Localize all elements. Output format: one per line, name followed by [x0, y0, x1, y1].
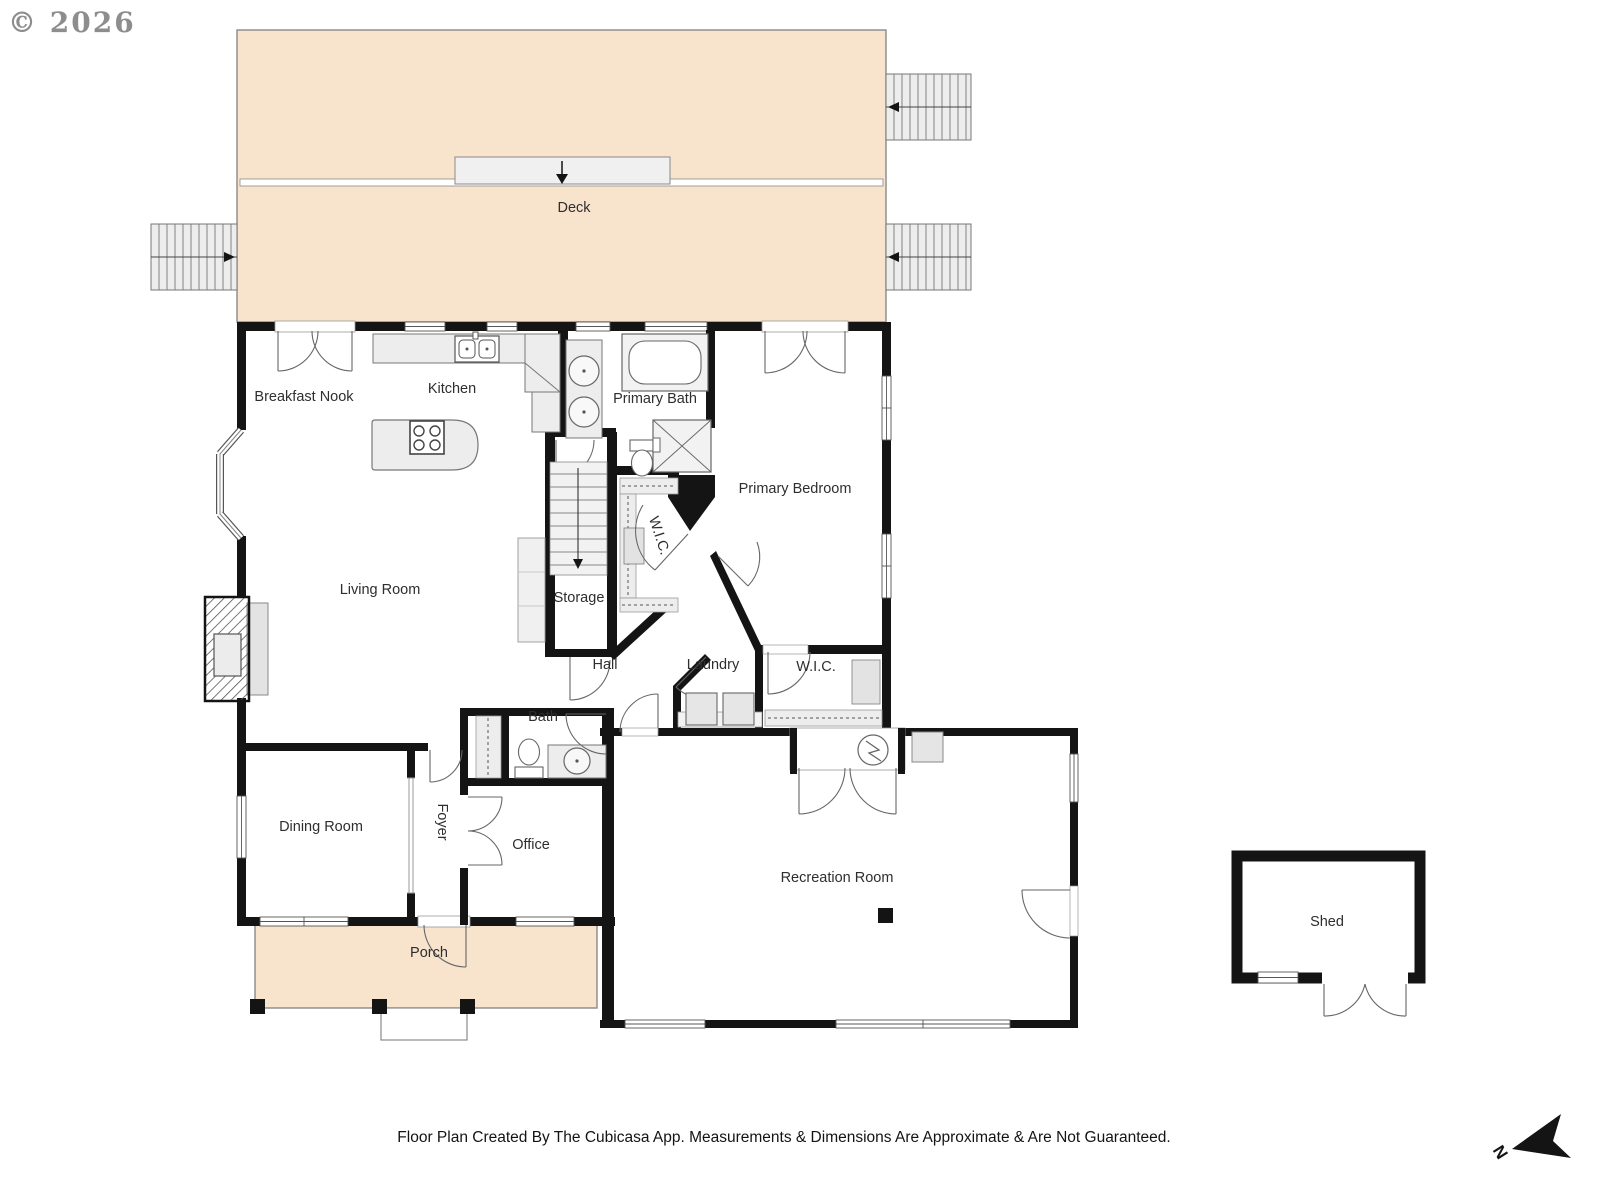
- porch-step: [381, 1008, 467, 1040]
- deck-stairs-right-lower: [886, 224, 971, 290]
- room-label-dining-room: Dining Room: [279, 819, 363, 835]
- door-arc: [799, 768, 896, 814]
- room-label-porch: Porch: [410, 945, 448, 961]
- door-arc: [1324, 984, 1406, 1016]
- stove-icon: [410, 421, 444, 454]
- kitchen-island: [372, 420, 478, 470]
- door-arc: [1022, 890, 1070, 938]
- laundry-fixtures: [678, 693, 762, 727]
- hall-rec-door-opening: [622, 728, 658, 736]
- stairs-icon: [550, 462, 607, 575]
- compass-letter: N: [1489, 1142, 1512, 1162]
- room-label-primary-bedroom: Primary Bedroom: [739, 481, 852, 497]
- room-label-hall: Hall: [593, 657, 618, 673]
- room-label-wic-2: W.I.C.: [796, 659, 835, 675]
- cased-opening: [407, 778, 415, 893]
- utility-box: [912, 732, 943, 762]
- door-arc: [468, 797, 502, 831]
- post: [250, 999, 265, 1014]
- post: [372, 999, 387, 1014]
- vanity-sinks: [566, 340, 602, 438]
- copyright-text: © 2026: [8, 6, 136, 39]
- shed-door-opening: [1322, 971, 1408, 984]
- room-label-breakfast-nook: Breakfast Nook: [254, 389, 354, 405]
- french-door-opening: [275, 321, 355, 332]
- sink-icon: [455, 332, 499, 362]
- fireplace-icon: [205, 597, 268, 701]
- post: [460, 999, 475, 1014]
- door-arc: [278, 331, 352, 371]
- room-label-deck: Deck: [557, 200, 591, 216]
- room-label-bath: Bath: [528, 709, 558, 725]
- shower-icon: [653, 420, 711, 472]
- shed-structure: [1237, 856, 1420, 1016]
- door-arc: [748, 542, 760, 586]
- deck-stairs-left: [151, 224, 237, 290]
- deck-area: [151, 30, 971, 322]
- room-label-living-room: Living Room: [340, 582, 421, 598]
- room-label-office: Office: [512, 837, 550, 853]
- porch-area: [250, 925, 597, 1040]
- floor-plan-page: Deck Breakfast Nook Kitchen Primary Bath…: [0, 0, 1600, 1200]
- sink-icon: [548, 745, 606, 778]
- room-label-recreation-room: Recreation Room: [781, 870, 894, 886]
- room-label-primary-bath: Primary Bath: [613, 391, 697, 407]
- toilet-icon: [515, 739, 543, 778]
- bay-window: [220, 430, 241, 538]
- footer-disclaimer: Floor Plan Created By The Cubicasa App. …: [397, 1129, 1170, 1146]
- door-arc: [765, 331, 845, 373]
- window: [237, 796, 574, 926]
- floor-plan-canvas: Deck Breakfast Nook Kitchen Primary Bath…: [0, 0, 1600, 1200]
- door-arc: [430, 750, 462, 782]
- north-arrow-icon: N: [1489, 1114, 1571, 1162]
- room-label-storage: Storage: [554, 590, 605, 606]
- toilet-icon: [630, 440, 654, 476]
- room-label-shed: Shed: [1310, 914, 1344, 930]
- room-label-wic-1: W.I.C.: [645, 515, 672, 557]
- room-label-kitchen: Kitchen: [428, 381, 476, 397]
- electrical-meter-icon: [858, 735, 888, 765]
- door-arc: [468, 831, 502, 865]
- washer-icon: [686, 693, 717, 725]
- living-room-niche: [518, 538, 545, 642]
- wic2-closet: [763, 645, 882, 726]
- deck-stairs-right-upper: [886, 74, 971, 140]
- room-label-laundry: Laundry: [687, 657, 740, 673]
- rec-side-door-opening: [1070, 886, 1078, 936]
- bathtub-icon: [622, 334, 708, 391]
- bedroom-deck-door-opening: [762, 321, 848, 332]
- dryer-icon: [723, 693, 754, 725]
- door-arc: [620, 694, 658, 732]
- room-label-foyer: Foyer: [434, 803, 450, 840]
